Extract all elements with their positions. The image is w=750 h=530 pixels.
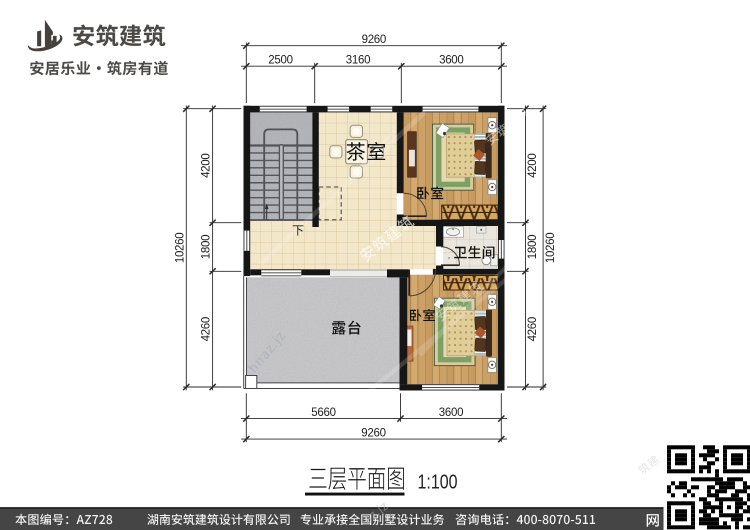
svg-text:10260: 10260 [174,233,186,263]
svg-text:3600: 3600 [439,407,463,419]
svg-text:9260: 9260 [361,427,385,439]
svg-text:3160: 3160 [346,54,370,66]
svg-text:5660: 5660 [311,407,335,419]
svg-text:2500: 2500 [268,54,292,66]
svg-text:4200: 4200 [201,154,213,178]
svg-text:1800: 1800 [527,235,539,259]
svg-text:4260: 4260 [201,317,213,341]
svg-text:3600: 3600 [439,54,463,66]
svg-text:4260: 4260 [527,317,539,341]
svg-text:10260: 10260 [545,233,557,263]
svg-text:1:100: 1:100 [418,472,458,494]
svg-text:4200: 4200 [527,154,539,178]
svg-text:1800: 1800 [201,235,213,259]
svg-text:9260: 9260 [362,34,386,46]
